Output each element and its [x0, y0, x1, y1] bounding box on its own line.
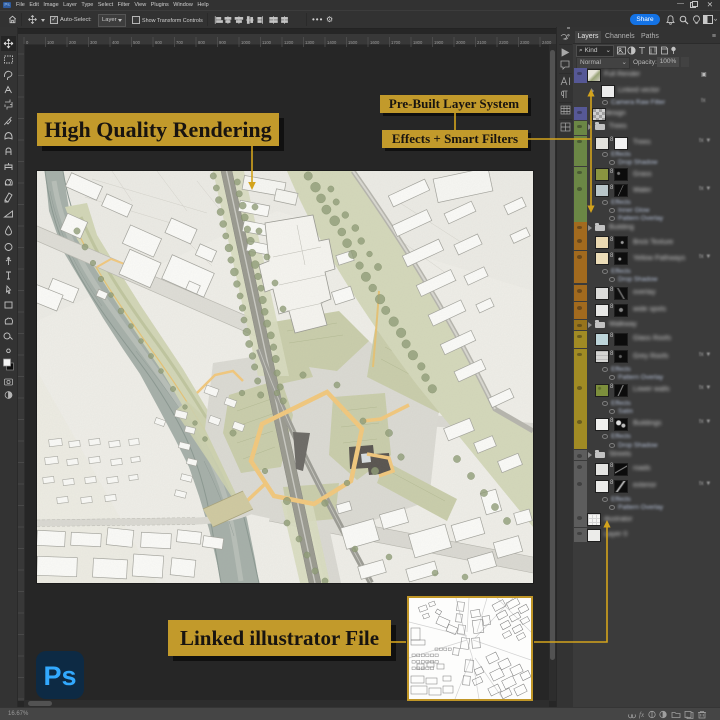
svg-text:1500: 1500	[348, 40, 358, 45]
svg-text:300: 300	[90, 40, 98, 45]
svg-text:2100: 2100	[477, 40, 487, 45]
svg-text:700: 700	[176, 40, 184, 45]
svg-text:fx: fx	[639, 711, 645, 719]
svg-text:100: 100	[47, 40, 55, 45]
svg-text:800: 800	[198, 40, 206, 45]
svg-text:1900: 1900	[434, 40, 444, 45]
svg-text:600: 600	[155, 40, 163, 45]
svg-text:1400: 1400	[327, 40, 337, 45]
svg-text:0: 0	[26, 40, 29, 45]
svg-text:1600: 1600	[370, 40, 380, 45]
svg-text:2200: 2200	[499, 40, 509, 45]
svg-text:1800: 1800	[413, 40, 423, 45]
svg-text:900: 900	[219, 40, 227, 45]
svg-text:1300: 1300	[305, 40, 315, 45]
svg-text:1100: 1100	[262, 40, 272, 45]
svg-text:500: 500	[133, 40, 141, 45]
svg-text:1000: 1000	[241, 40, 251, 45]
svg-text:1700: 1700	[391, 40, 401, 45]
svg-text:1200: 1200	[284, 40, 294, 45]
svg-text:400: 400	[112, 40, 120, 45]
svg-text:2000: 2000	[456, 40, 466, 45]
svg-text:2300: 2300	[520, 40, 530, 45]
svg-text:200: 200	[69, 40, 77, 45]
